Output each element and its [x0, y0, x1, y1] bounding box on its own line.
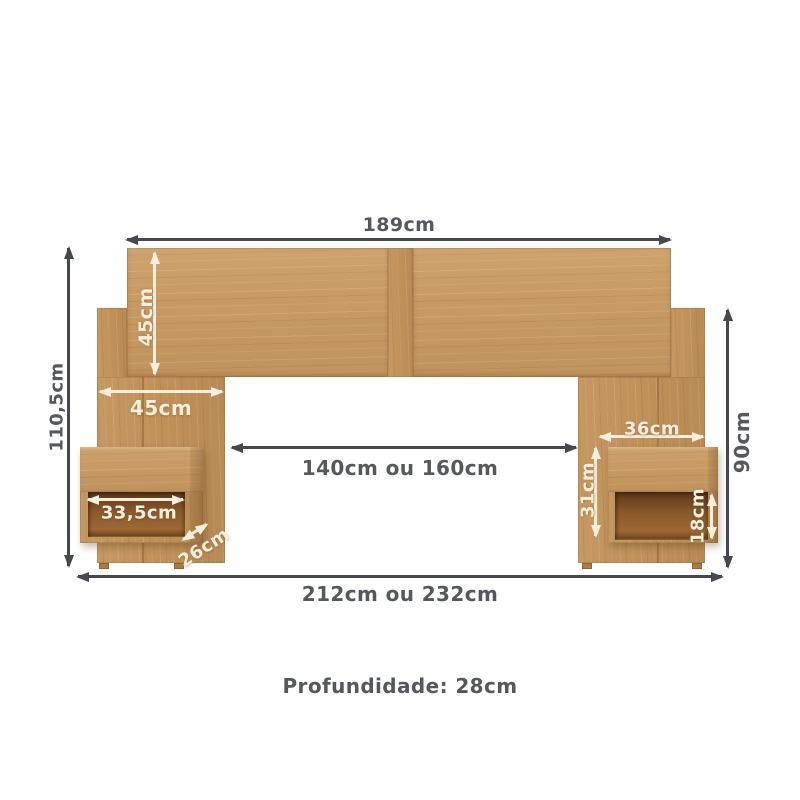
- right-panel-foot: [582, 563, 592, 569]
- dim-label-right-nightstand-width: 36cm: [624, 419, 680, 440]
- left-nightstand-lid: [80, 447, 203, 492]
- dim-label-headboard-panel-height: 45cm: [135, 287, 157, 346]
- dim-arrow-inner-span: [232, 446, 576, 449]
- headboard-center-strip: [388, 248, 413, 377]
- headboard-dimension-diagram: 189cm 45cm 110,5cm 45cm 33,5cm 26cm 140c…: [0, 0, 800, 800]
- dim-label-right-niche-height: 18cm: [688, 488, 709, 544]
- headboard-panel-right: [413, 248, 671, 377]
- right-nightstand-lid: [608, 447, 718, 492]
- dim-label-total-height: 110,5cm: [47, 362, 68, 451]
- dim-arrow-headboard-width: [127, 238, 670, 241]
- dim-arrow-left-niche-width: [88, 498, 183, 501]
- dim-label-right-nightstand-height: 31cm: [578, 462, 599, 518]
- dim-label-inner-span: 140cm ou 160cm: [302, 456, 498, 480]
- dim-label-side-height: 90cm: [730, 411, 754, 473]
- dim-label-left-niche-width: 33,5cm: [101, 503, 177, 524]
- headboard-panel-left: [127, 248, 388, 377]
- right-side-panel-top: [671, 308, 705, 378]
- left-panel-foot: [99, 563, 109, 569]
- dim-label-headboard-width: 189cm: [363, 214, 436, 236]
- dim-label-side-panel-width: 45cm: [130, 396, 192, 420]
- depth-note: Profundidade: 28cm: [283, 674, 518, 698]
- left-side-panel-top: [97, 308, 127, 378]
- dim-arrow-total-width: [78, 575, 722, 578]
- right-panel-foot: [692, 563, 702, 569]
- dim-arrow-side-height: [726, 310, 729, 567]
- dim-arrow-right-niche-height: [710, 495, 713, 538]
- dim-arrow-side-panel-width: [100, 390, 222, 393]
- dim-label-total-width: 212cm ou 232cm: [302, 582, 498, 606]
